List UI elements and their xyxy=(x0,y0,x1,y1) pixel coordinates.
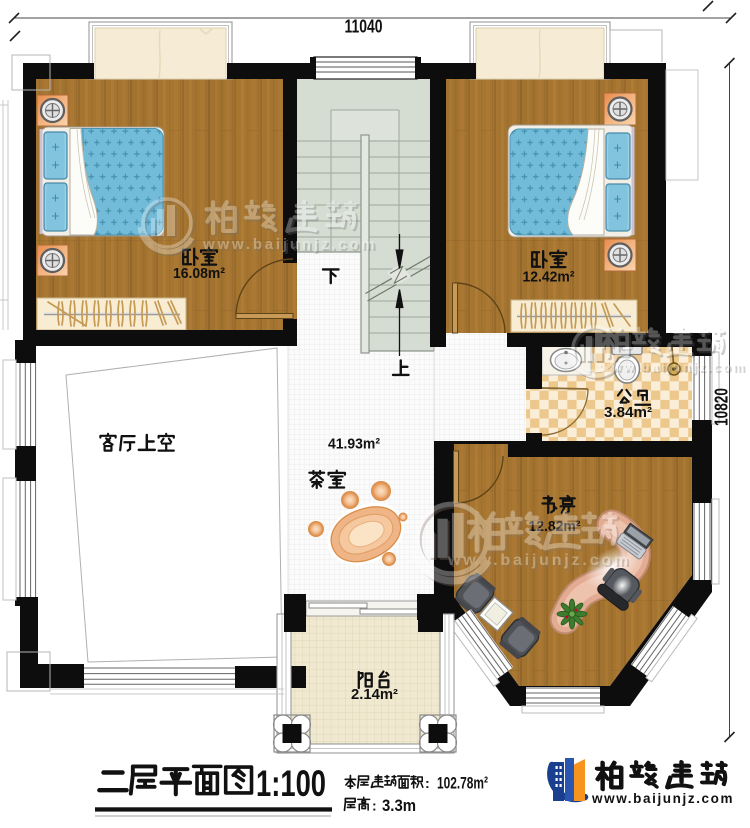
svg-text:www.baijunjz.com: www.baijunjz.com xyxy=(447,552,631,569)
svg-text:www.baijunjz.com: www.baijunjz.com xyxy=(591,791,734,806)
svg-text:3.3m: 3.3m xyxy=(382,797,416,815)
svg-text::: : xyxy=(372,798,377,814)
svg-text:11040: 11040 xyxy=(345,17,383,37)
svg-text:www.baijunjz.com: www.baijunjz.com xyxy=(202,236,377,253)
svg-text:12.42m²: 12.42m² xyxy=(523,269,575,286)
svg-text:41.93m²: 41.93m² xyxy=(328,436,380,453)
svg-text:10820: 10820 xyxy=(712,388,732,426)
svg-text:3.84m²: 3.84m² xyxy=(604,405,652,421)
svg-text:2.14m²: 2.14m² xyxy=(351,687,398,703)
svg-text:102.78m²: 102.78m² xyxy=(437,775,488,793)
svg-text:1:100: 1:100 xyxy=(256,762,326,804)
svg-text:16.08m²: 16.08m² xyxy=(173,265,225,282)
svg-text::: : xyxy=(425,775,430,791)
svg-text:www.baijunjz.com: www.baijunjz.com xyxy=(598,359,746,374)
